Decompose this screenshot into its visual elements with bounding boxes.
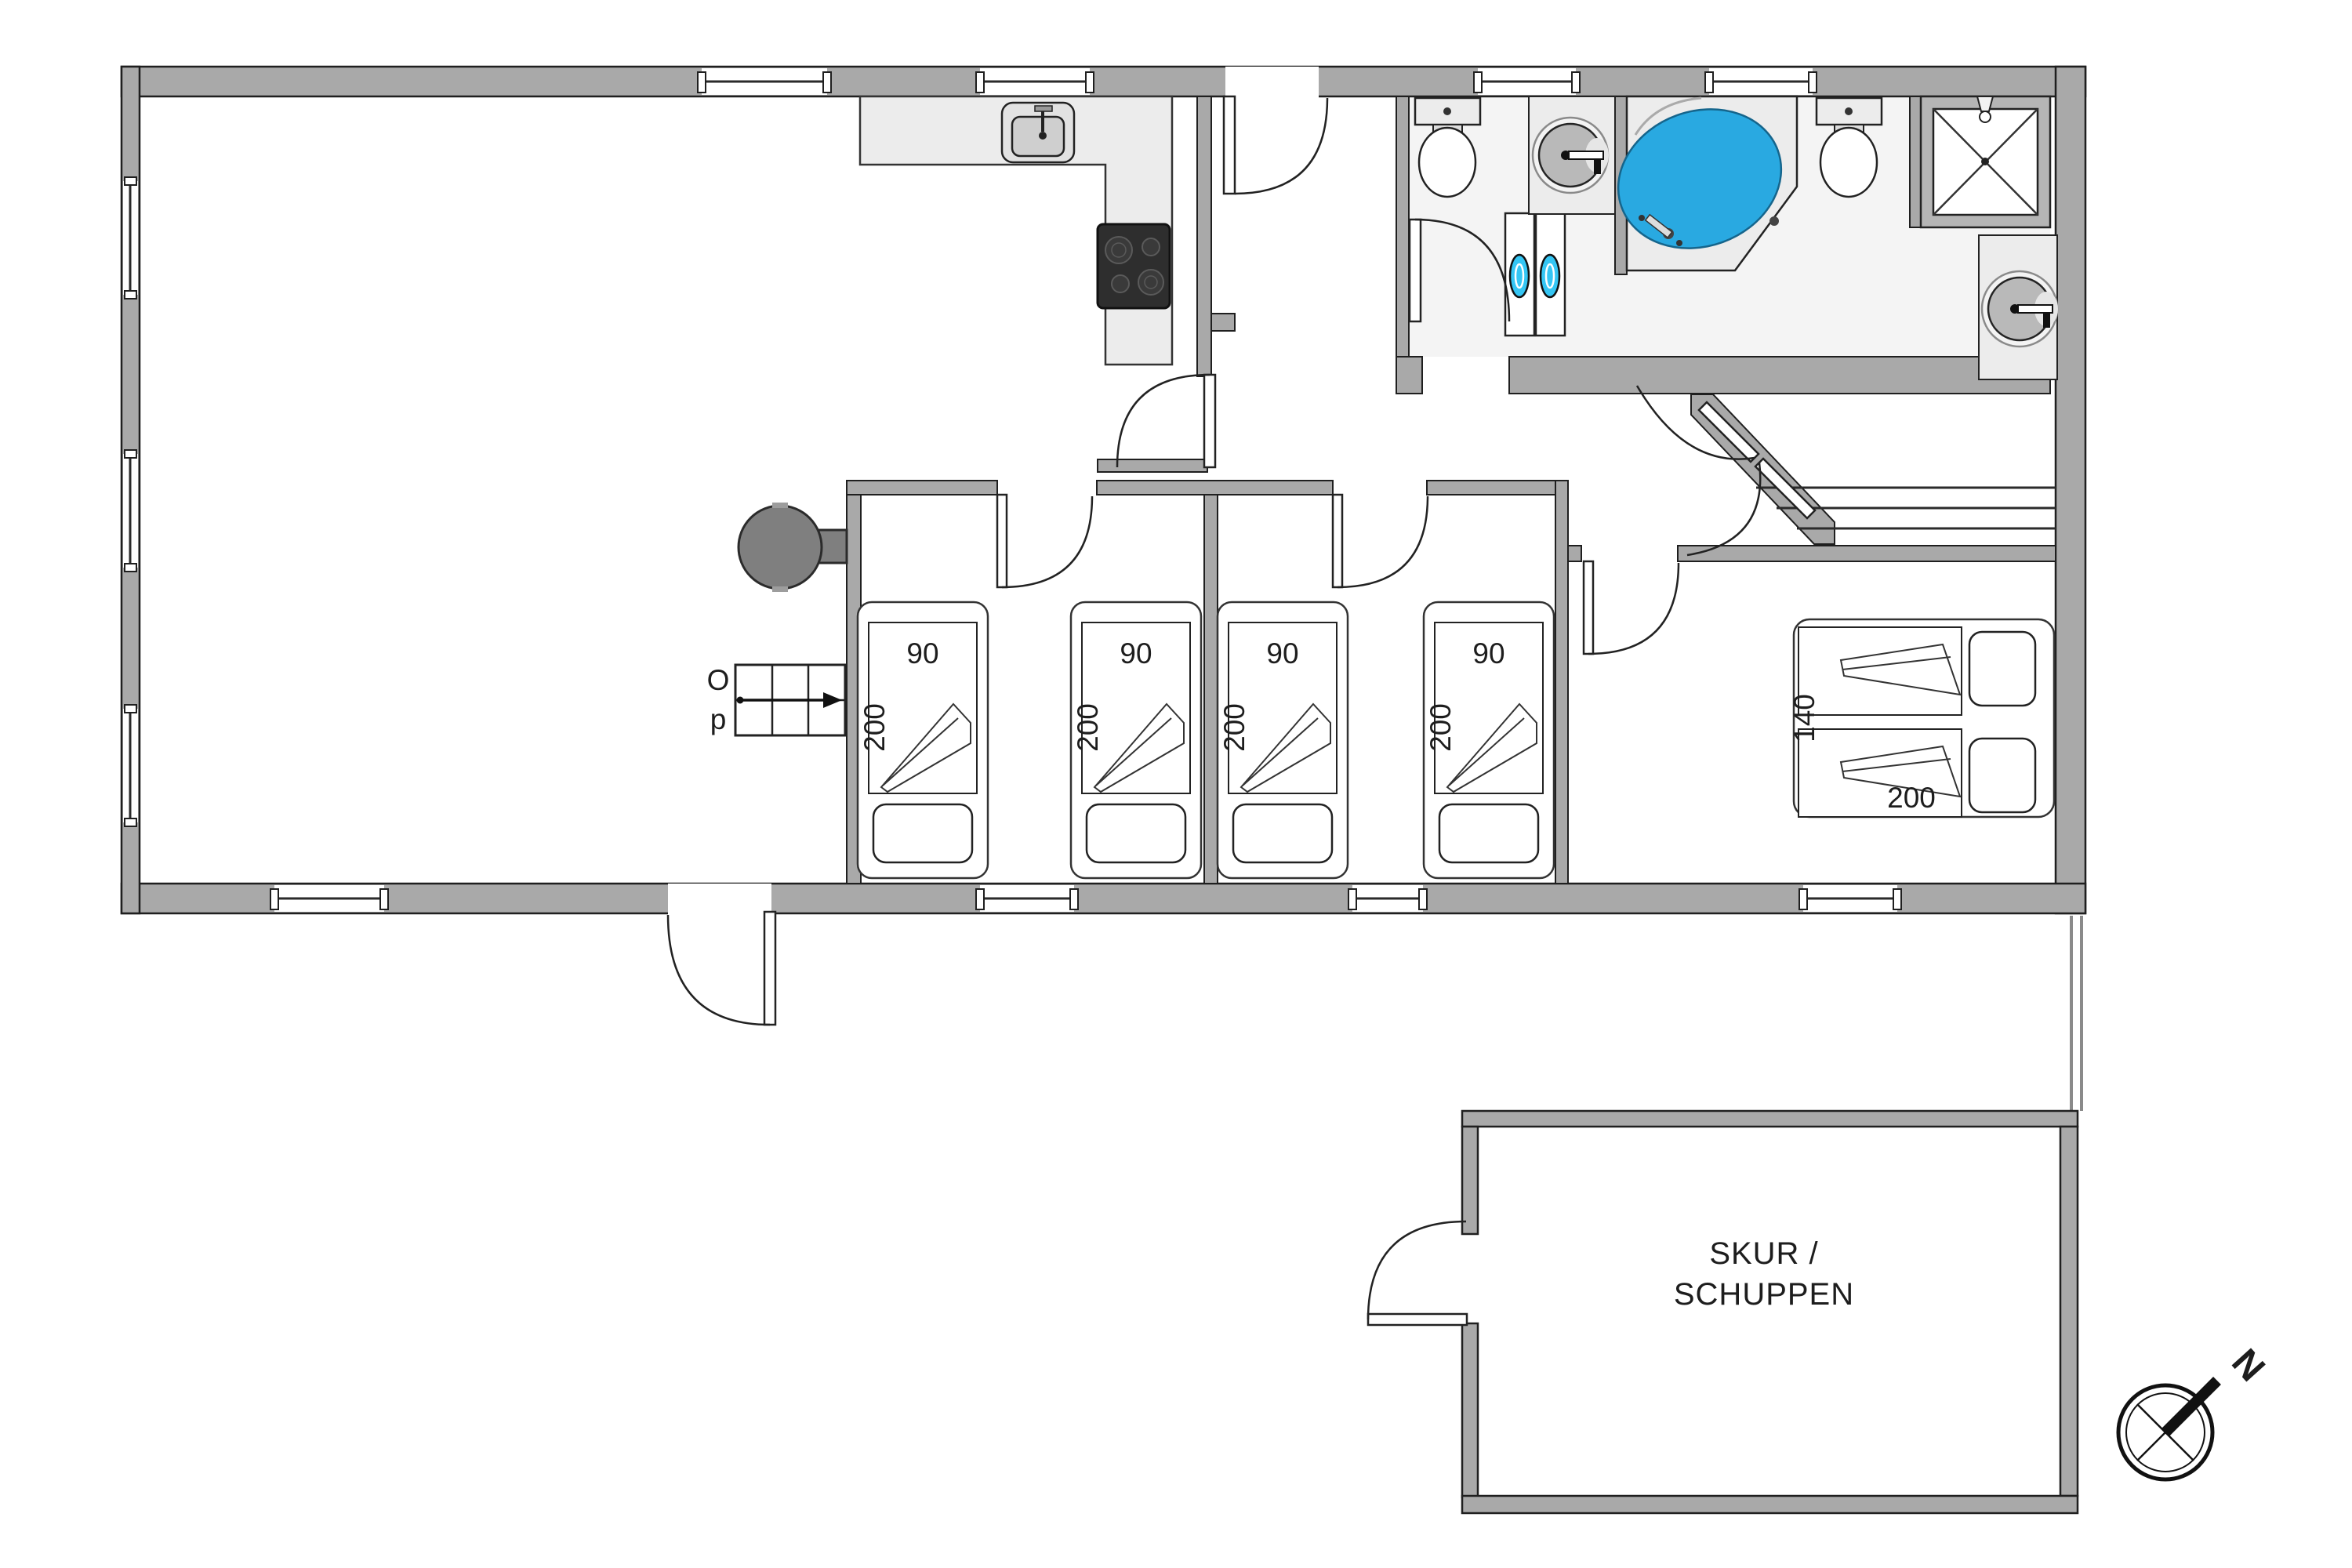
double-bedroom-north-stub bbox=[1568, 546, 1581, 561]
floor-plan-canvas: O p 90 200 90 200 90 200 90 bbox=[0, 0, 2352, 1568]
kitchen bbox=[860, 96, 1172, 365]
shower-side-wall bbox=[1910, 96, 1921, 227]
kitchen-sink-icon bbox=[1002, 103, 1074, 162]
bed-length-label: 200 bbox=[1887, 782, 1936, 814]
bed-length-label: 200 bbox=[1425, 703, 1457, 752]
bed-width-label: 140 bbox=[1788, 694, 1820, 742]
bed-length-label: 200 bbox=[1072, 703, 1104, 752]
toilet-icon bbox=[1817, 98, 1882, 197]
bed-double: 140 200 bbox=[1788, 619, 2054, 817]
bedroom1-door bbox=[997, 495, 1092, 587]
hall-stub-wall bbox=[1098, 459, 1207, 472]
vestibule-south-stub bbox=[1211, 314, 1235, 331]
bedroom-north-wall-3 bbox=[1427, 481, 1555, 495]
double-bedroom-door bbox=[1584, 561, 1679, 654]
window-icon bbox=[1348, 885, 1427, 912]
bed-single-1: 90 200 bbox=[858, 602, 988, 878]
compass-north-label: N bbox=[2223, 1341, 2273, 1389]
window-icon bbox=[123, 450, 138, 572]
terrace-door bbox=[668, 912, 775, 1025]
bed-width-label: 90 bbox=[1120, 637, 1152, 670]
window-icon bbox=[123, 705, 138, 826]
bedroom-divider-wall bbox=[1204, 495, 1218, 884]
bedroom-north-wall-2 bbox=[1097, 481, 1333, 495]
bed-single-4: 90 200 bbox=[1424, 602, 1554, 878]
washbasin-2-icon bbox=[1982, 271, 2058, 347]
shed-label-line2: SCHUPPEN bbox=[1674, 1277, 1854, 1312]
west-windows bbox=[123, 177, 138, 826]
cooktop-icon bbox=[1098, 224, 1170, 308]
bedroom2-east-wall bbox=[1555, 481, 1568, 884]
shed-label-line1: SKUR / bbox=[1709, 1236, 1818, 1271]
back-door bbox=[1224, 96, 1327, 194]
window-icon bbox=[270, 885, 388, 912]
bathroom-south-wall bbox=[1509, 357, 2050, 394]
toilet-icon bbox=[1415, 98, 1480, 197]
window-icon bbox=[698, 68, 831, 95]
shed: SKUR / SCHUPPEN bbox=[1368, 916, 2082, 1513]
washing-machines-icon bbox=[1505, 213, 1565, 336]
bed-single-3: 90 200 bbox=[1218, 602, 1348, 878]
bedroom-north-wall-1 bbox=[847, 481, 997, 495]
shed-door bbox=[1368, 1221, 1467, 1325]
terrace-door-opening bbox=[668, 884, 771, 915]
kitchen-partition-wall bbox=[1197, 96, 1211, 376]
washbasin-1-icon bbox=[1533, 118, 1609, 193]
window-icon bbox=[976, 885, 1078, 912]
bed-length-label: 200 bbox=[858, 703, 891, 752]
bathroom-south-wall-west bbox=[1396, 357, 1422, 394]
south-wall bbox=[122, 884, 2085, 913]
bed-single-2: 90 200 bbox=[1071, 602, 1201, 878]
back-door-opening bbox=[1225, 67, 1319, 98]
bed-width-label: 90 bbox=[1472, 637, 1504, 670]
window-icon bbox=[1474, 68, 1580, 95]
window-icon bbox=[123, 177, 138, 299]
staircase: O p bbox=[707, 664, 845, 735]
bedroom2-door bbox=[1333, 495, 1428, 587]
compass-icon: N bbox=[2118, 1341, 2273, 1479]
bed-width-label: 90 bbox=[1266, 637, 1298, 670]
wood-stove-icon bbox=[739, 503, 847, 592]
stairs-label-up-o: O bbox=[707, 664, 730, 696]
kitchen-door bbox=[1117, 375, 1215, 467]
bed-width-label: 90 bbox=[906, 637, 938, 670]
double-bedroom-north-wall bbox=[1678, 546, 2056, 561]
window-icon bbox=[976, 68, 1094, 95]
bed-length-label: 200 bbox=[1218, 703, 1250, 752]
stairs-label-up-p: p bbox=[710, 703, 727, 735]
window-icon bbox=[1705, 68, 1817, 95]
east-wall bbox=[2056, 67, 2085, 913]
shower-icon bbox=[1921, 96, 2050, 227]
vestibule-east-wall bbox=[1396, 96, 1409, 371]
window-icon bbox=[1799, 885, 1901, 912]
